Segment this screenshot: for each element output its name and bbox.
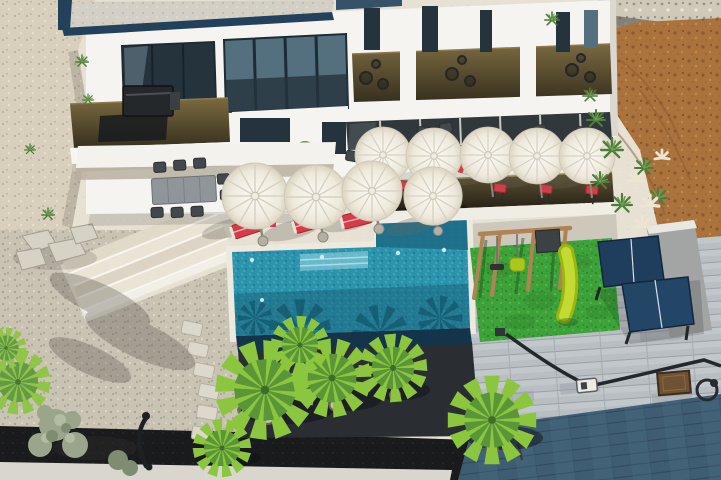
- climbing-platform: [535, 229, 560, 253]
- roof-trim-corner: [58, 0, 72, 30]
- pool-steps: [300, 251, 368, 271]
- bbq-grill: [123, 86, 180, 116]
- parasol: [404, 167, 462, 225]
- parasol: [342, 161, 402, 221]
- balcony-divider: [520, 44, 536, 98]
- parasol: [460, 127, 516, 183]
- balcony-divider: [400, 46, 416, 102]
- parasol: [222, 163, 288, 229]
- aerial-photo-villa: [0, 0, 721, 480]
- center-balconies: [352, 44, 612, 102]
- parasol: [509, 128, 565, 184]
- baby-swing: [510, 258, 525, 271]
- pool-robot: [576, 378, 597, 393]
- access-hatch: [657, 371, 691, 396]
- parasol: [284, 165, 348, 229]
- swing-seat: [490, 264, 504, 270]
